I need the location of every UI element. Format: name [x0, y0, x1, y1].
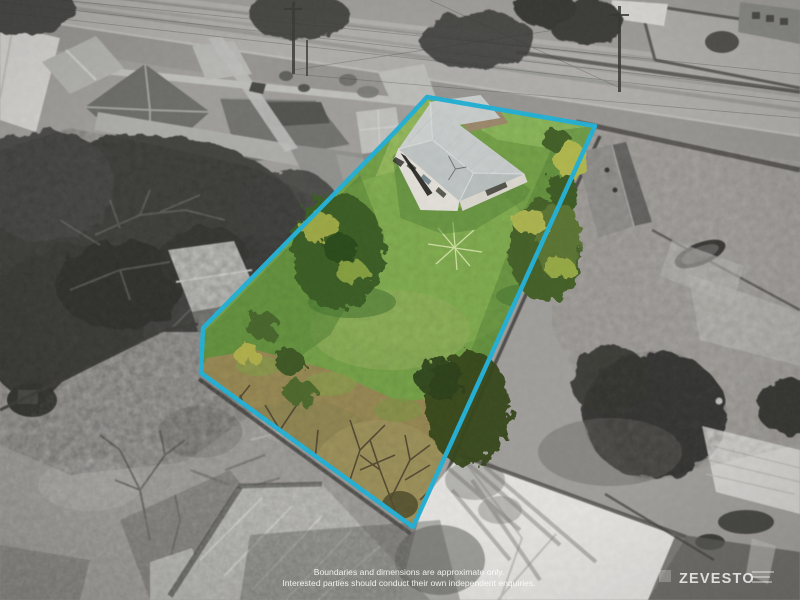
svg-text:Boundaries and dimensions are: Boundaries and dimensions are approximat… — [314, 567, 504, 577]
svg-text:ZEVESTO: ZEVESTO — [679, 571, 755, 587]
svg-text:Interested parties should cond: Interested parties should conduct their … — [282, 578, 535, 588]
